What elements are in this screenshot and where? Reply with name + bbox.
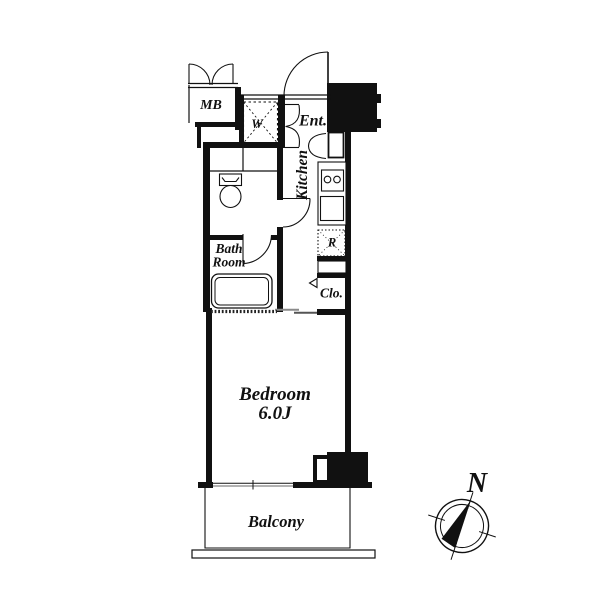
wall-bath-right (277, 240, 283, 312)
wall-pillar-bump-1 (377, 94, 381, 103)
wall-pillar-top (327, 83, 377, 132)
toilet-bowl (220, 186, 241, 208)
wall-washer-right (278, 95, 285, 148)
kitchen-door-arc-top (309, 134, 327, 147)
label-washer: W (251, 116, 264, 131)
wall-bath-divider-left (203, 235, 243, 240)
closet-door-mark (310, 279, 318, 288)
wall-left-connector (197, 125, 201, 148)
kitchen-sink (321, 197, 344, 221)
compass-needle (440, 496, 470, 547)
label-balcony: Balcony (247, 512, 305, 531)
bathtub-inner (215, 278, 269, 306)
wall-toilet-top (203, 142, 285, 148)
label-bedroom: Bedroom (238, 384, 311, 405)
label-entrance: Ent. (298, 113, 327, 130)
wall-bath-divider-right (271, 235, 283, 240)
wall-closet-bottom (317, 309, 351, 315)
kitchen-door-arc-bottom (309, 146, 327, 159)
floorplan-canvas: N MB W Ent. Kitchen Bath Room R Clo. Bed… (0, 0, 600, 600)
entry-cabinet (329, 133, 344, 158)
washer-door-arc-bottom (286, 127, 300, 148)
balcony-rail (192, 550, 375, 558)
shelf-box (318, 261, 346, 273)
entrance-door-arc (284, 52, 328, 96)
wall-mb-bottom (195, 122, 240, 127)
wall-under-fridge (317, 256, 351, 261)
compass: N (417, 468, 506, 571)
bath-door-arc (243, 235, 272, 264)
stove-burner-right (334, 176, 341, 183)
wall-toilet-right-upper (277, 148, 283, 200)
label-kitchen: Kitchen (294, 150, 311, 201)
label-refrigerator: R (327, 236, 336, 250)
pillar-bottom-notch (317, 459, 327, 480)
wall-bath-left (203, 142, 210, 312)
label-meter-box: MB (199, 98, 222, 113)
washroom-door-arc (283, 199, 310, 228)
toilet-tank (220, 174, 242, 186)
stove-burner-left (324, 176, 331, 183)
compass-north-label: N (466, 468, 489, 499)
wall-pillar-bottom (327, 452, 368, 488)
mb-door-arc-left (189, 64, 210, 85)
wall-pillar-bump-2 (377, 119, 381, 128)
label-bedroom-size: 6.0J (258, 403, 292, 424)
floorplan-drawing: N MB W Ent. Kitchen Bath Room R Clo. Bed… (0, 0, 600, 600)
wall-bedroom-left (206, 308, 212, 488)
wall-bottom-left (198, 482, 213, 488)
mb-door-arc-right (212, 64, 233, 85)
label-closet: Clo. (320, 286, 343, 301)
wall-under-shelf (317, 273, 351, 278)
label-bath-line2: Room (211, 255, 245, 270)
washer-door-arc-top (286, 105, 300, 127)
